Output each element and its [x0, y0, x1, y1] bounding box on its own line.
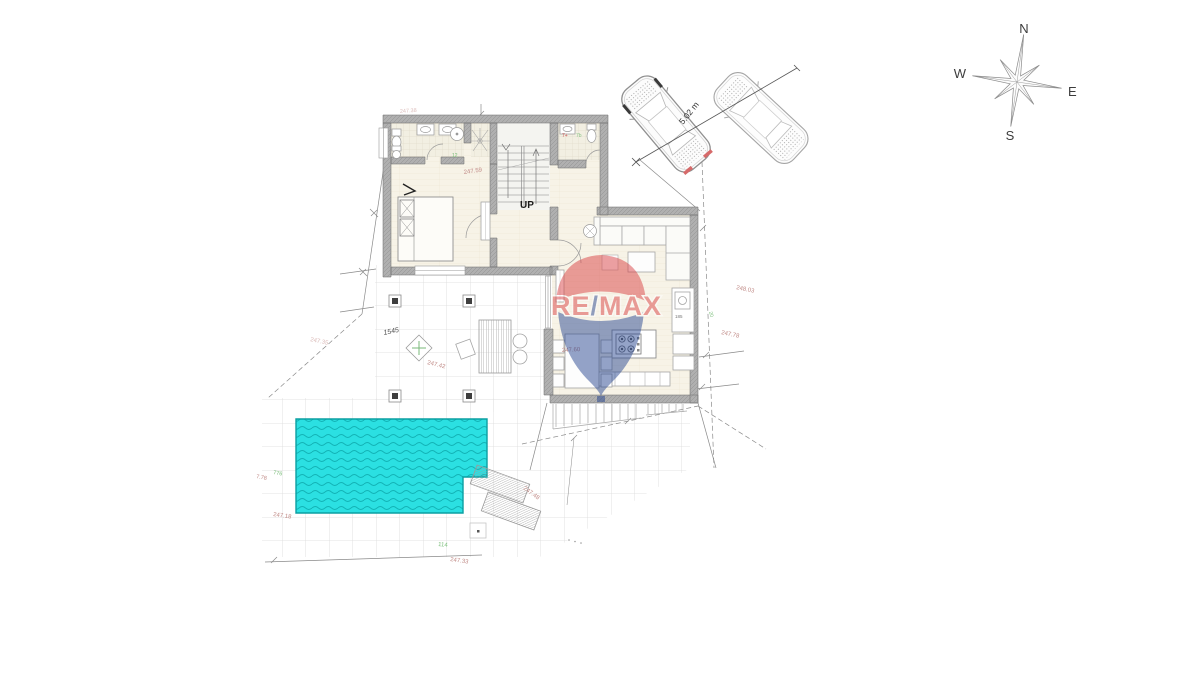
dim-terrace-left: 247.35: [310, 337, 330, 347]
floor-plan-page: UP: [0, 0, 1200, 675]
compass-rose: N E S W: [954, 21, 1077, 143]
green-label-114: 114: [438, 542, 449, 549]
wardrobe: [481, 202, 490, 240]
compass-south-label: S: [1006, 128, 1015, 143]
dim-right-upper: 248.03: [736, 285, 756, 295]
dim-west: 7.78: [256, 474, 268, 482]
dim-right-lower: 247.78: [721, 330, 741, 340]
plant: [584, 225, 597, 238]
stairs-up-label: UP: [520, 200, 534, 211]
balloon-basket: [597, 396, 605, 402]
green-label-7b: 7b: [576, 133, 582, 139]
pool-drain: [470, 523, 486, 538]
remax-re: RE: [551, 291, 591, 321]
bed: [398, 197, 453, 261]
compass-west-label: W: [954, 66, 967, 81]
site-plan-drawing: UP: [0, 0, 1200, 675]
compass-east-label: E: [1068, 84, 1077, 99]
red-label-7: 7+: [562, 133, 568, 139]
car-1: [613, 68, 718, 180]
remax-slash: /: [591, 291, 600, 321]
kitchen-note: 185: [675, 314, 683, 319]
green-label-12: 12: [452, 153, 458, 159]
car-2: [706, 64, 816, 171]
swimming-pool: [296, 419, 487, 513]
dim-pool-bottom: 247.33: [450, 557, 470, 566]
remax-max: MAX: [599, 291, 662, 321]
survey-dots: [568, 539, 582, 544]
compass-north-label: N: [1019, 21, 1028, 36]
dim-top: 247.38: [400, 108, 417, 115]
remax-logo-text: RE/MAX: [551, 291, 662, 321]
